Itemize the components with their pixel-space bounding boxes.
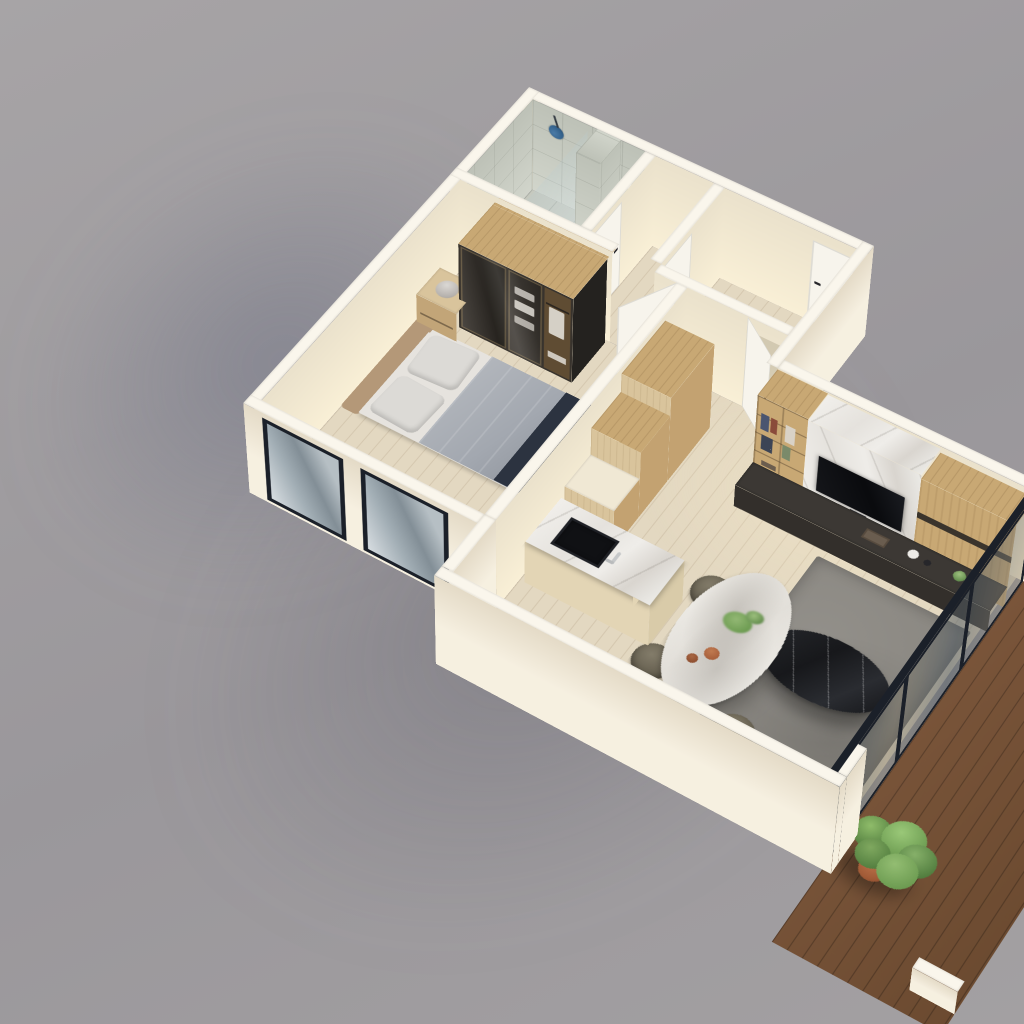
book-spines (761, 434, 773, 454)
rust-vase-1 (701, 645, 722, 662)
console-books (861, 528, 890, 548)
black-vase (922, 559, 932, 567)
book-spines (760, 413, 769, 433)
book-spines (770, 418, 778, 436)
white-vase (906, 548, 921, 560)
front-door-handle-icon (814, 281, 820, 286)
rust-vase-2 (684, 652, 700, 665)
book-spines (782, 444, 791, 461)
render-canvas (0, 0, 1024, 1024)
book-spines (785, 425, 796, 447)
